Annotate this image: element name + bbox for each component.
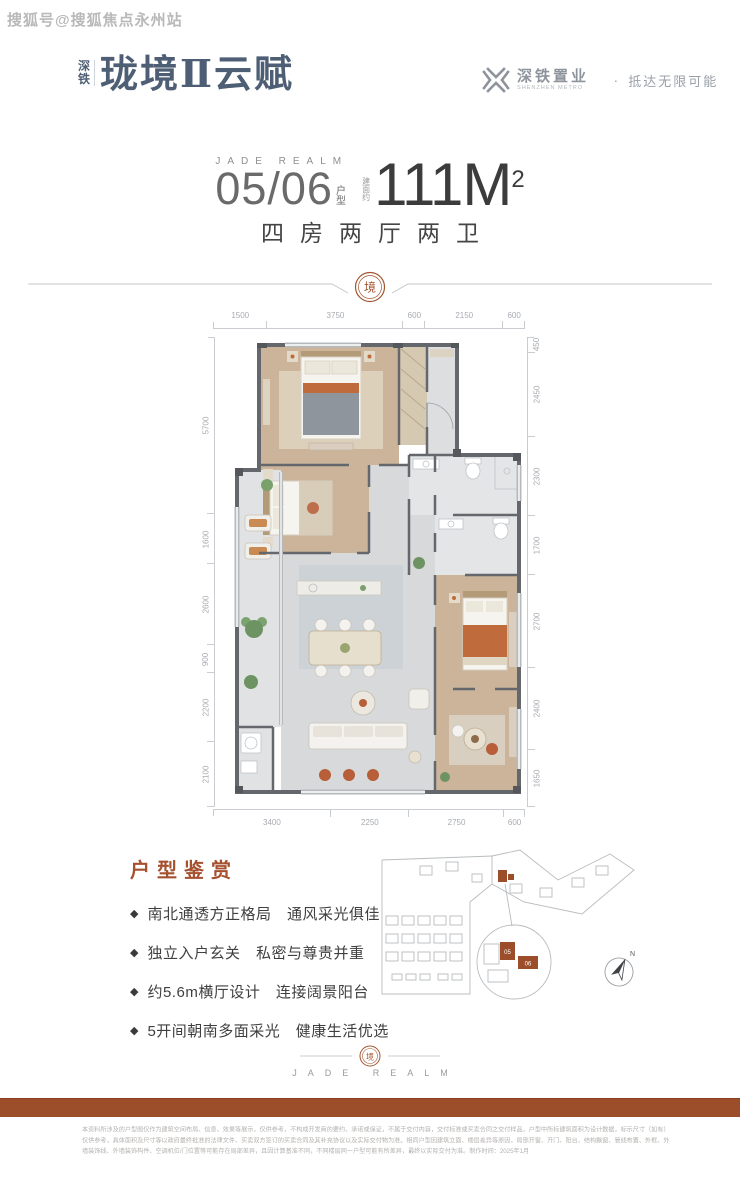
siteplan-diagram: 05 06 N [372,844,644,1026]
feature-item: ◆ 约5.6m横厅设计 连接阔景阳台 [130,981,380,1002]
dim-segment: 2400 [527,668,545,751]
features-section: 户型鉴赏 ◆ 南北通透方正格局 通风采光俱佳 ◆ 独立入户玄关 私密与尊贵并重 … [130,854,380,1059]
dim-segment: 2750 [409,809,504,827]
diamond-bullet-icon: ◆ [130,1024,138,1037]
developer-name-en: SHENZHEN METRO [517,85,583,91]
area-value: 111M2 [374,157,525,208]
dim-segment: 2300 [527,437,545,516]
diamond-bullet-icon: ◆ [130,907,138,920]
divider-seal-character: 境 [364,280,376,295]
area-number: 111M [374,151,511,218]
disclaimer-line: 墙装饰线、外墙装饰构件、空调机位/门位置等可能存在局部差异，且因计算基准不同，不… [82,1146,660,1157]
dim-segment: 3400 [213,809,331,827]
footer-en-label: JADE REALM [0,1068,740,1078]
feature-item: ◆ 5开间朝南多面采光 健康生活优选 [130,1020,380,1041]
dim-segment: 2250 [331,809,409,827]
diamond-bullet-icon: ◆ [130,946,138,959]
dim-segment: 2150 [425,311,503,329]
feature-item: ◆ 独立入户玄关 私密与尊贵并重 [130,942,380,963]
unit-05-label: 05 [504,950,511,956]
sohu-watermark: 搜狐号@搜狐焦点永州站 [7,9,183,30]
dim-segment: 1700 [527,516,545,575]
developer-name: 深铁置业 [517,69,600,85]
developer-lockup: 深铁置业 SHENZHEN METRO · 抵达无限可能 [482,66,718,94]
dim-segment: 2450 [527,353,545,437]
dim-segment: 1500 [213,311,267,329]
shenzhen-metro-logo-icon [482,66,510,94]
floorplan-rendering [213,337,525,807]
compass-north-label: N [630,951,635,958]
developer-slogan: 抵达无限可能 [628,71,718,90]
dim-segment: 2700 [527,575,545,668]
disclaimer-line: 本资料所涉及的户型图仅作为建筑空间布局、信息、效果等展示，仅供参考，不构成开发商… [82,1124,660,1135]
separator-dot: · [614,72,619,88]
dimension-chain-bottom: 3400 2250 2750 600 [213,809,525,827]
unit-06-label: 06 [525,962,532,968]
feature-item: ◆ 南北通透方正格局 通风采光俱佳 [130,903,380,924]
logo-prefix-char2: 铁 [78,73,90,86]
unit-number-row: 05/06 户型 [215,170,348,208]
area-exponent: 2 [511,166,524,193]
diamond-bullet-icon: ◆ [130,985,138,998]
area-prefix: 建面约 [362,178,371,202]
siteplan-outlines [382,850,634,999]
dim-segment: 600 [503,311,525,329]
unit-headline: JADE REALM 05/06 户型 建面约 111M2 [0,156,740,208]
project-logo: 深 铁 珑境Ⅱ云赋 [78,54,294,94]
poster-page: 搜狐号@搜狐焦点永州站 深 铁 珑境Ⅱ云赋 深铁置业 SHENZHEN METR… [0,0,740,1184]
unit-number-block: JADE REALM 05/06 户型 [215,156,348,208]
logo-prefix: 深 铁 [78,60,95,86]
disclaimer-line: 仅供参考，具体面积及尺寸等以政府最终批准的法律文件、买卖双方签订的买卖合同及其补… [82,1135,660,1146]
unit-number: 05/06 [215,170,333,208]
dim-segment: 1650 [527,750,545,807]
dim-segment: 3750 [267,311,403,329]
footer-seal-character: 境 [366,1052,374,1062]
features-title: 户型鉴赏 [130,854,380,883]
dimension-chain-top: 1500 3750 600 2150 600 [213,311,525,329]
disclaimer: 本资料所涉及的户型图仅作为建筑空间布局、信息、效果等展示，仅供参考，不构成开发商… [82,1124,660,1157]
dimension-chain-right: 450 2450 2300 1700 2700 2400 1650 [527,337,545,807]
features-list: ◆ 南北通透方正格局 通风采光俱佳 ◆ 独立入户玄关 私密与尊贵并重 ◆ 约5.… [130,903,380,1041]
dim-segment: 600 [403,311,425,329]
decorative-divider: 境 [0,260,740,306]
project-name: 珑境Ⅱ云赋 [100,54,294,94]
dim-segment: 600 [504,809,525,827]
compass-icon: N [600,951,637,991]
bedroom-2 [263,469,332,547]
developer-name-block: 深铁置业 SHENZHEN METRO [517,69,600,92]
dim-segment: 450 [527,337,545,353]
unit-label: 户型 [336,187,348,207]
room-configuration: 四房两厅两卫 [0,214,740,248]
accent-band [0,1098,740,1117]
